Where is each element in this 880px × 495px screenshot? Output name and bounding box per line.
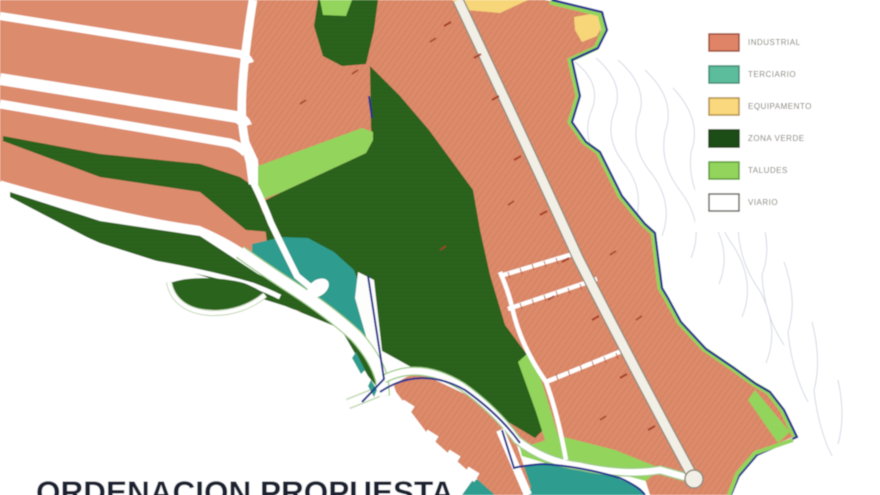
svg-text:TERCIARIO: TERCIARIO [748,70,796,79]
svg-text:ZONA VERDE: ZONA VERDE [748,134,805,143]
svg-text:VIARIO: VIARIO [748,198,778,207]
svg-text:EQUIPAMENTO: EQUIPAMENTO [748,102,812,111]
svg-text:INDUSTRIAL: INDUSTRIAL [748,38,801,47]
svg-text:ORDENACION PROPUESTA: ORDENACION PROPUESTA [36,474,454,495]
svg-text:TALUDES: TALUDES [748,166,788,175]
